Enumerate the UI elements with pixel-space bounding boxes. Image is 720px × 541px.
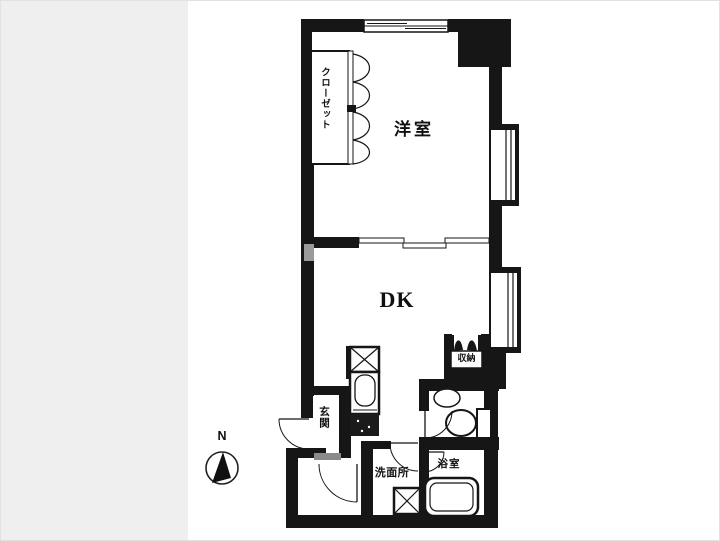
sliding-door-partition (359, 238, 489, 248)
entrance-step (314, 453, 341, 460)
storage-label: 収納 (450, 354, 483, 363)
wall-segment (489, 204, 502, 272)
window-top (364, 20, 448, 32)
bathtub (425, 478, 478, 516)
refrigerator-space (350, 347, 379, 372)
toilet-room-fixtures (425, 389, 491, 438)
kitchen-unit (350, 347, 379, 436)
wall-segment (363, 441, 391, 449)
closet-label: クローゼット (319, 67, 329, 130)
storage-bifold-doors (449, 335, 483, 351)
floor-plan-drawing (1, 1, 720, 541)
wall-segment (301, 164, 314, 396)
wall-segment (484, 386, 498, 528)
wall-segment (286, 448, 298, 528)
western-room-label: 洋室 (383, 121, 445, 139)
washing-machine-space (394, 488, 420, 514)
wall-segment (304, 19, 364, 32)
bathroom-label: 浴室 (430, 459, 468, 470)
compass-needle (212, 452, 231, 483)
wall-segment (301, 396, 313, 418)
wall-segment (489, 32, 502, 127)
wall-segment (419, 389, 429, 411)
floor-plan-image: クローゼット 洋室 DK 収納 玄関 洗面所 浴室 N (0, 0, 720, 541)
dining-kitchen-label: DK (369, 288, 425, 311)
compass (206, 452, 238, 484)
lower-room-door-arc (319, 464, 357, 502)
window-right-upper (489, 124, 519, 206)
wall-shading (304, 244, 314, 261)
window-right-lower (489, 267, 521, 353)
toilet (446, 409, 491, 438)
washroom-label: 洗面所 (364, 468, 420, 480)
wall-segment (458, 21, 511, 67)
kitchen-stove (350, 414, 379, 436)
hand-basin (434, 389, 460, 407)
kitchen-sink (350, 372, 379, 414)
entry-door-arc (279, 419, 309, 449)
entrance-label: 玄関 (318, 406, 329, 429)
compass-north-label: N (209, 430, 235, 443)
